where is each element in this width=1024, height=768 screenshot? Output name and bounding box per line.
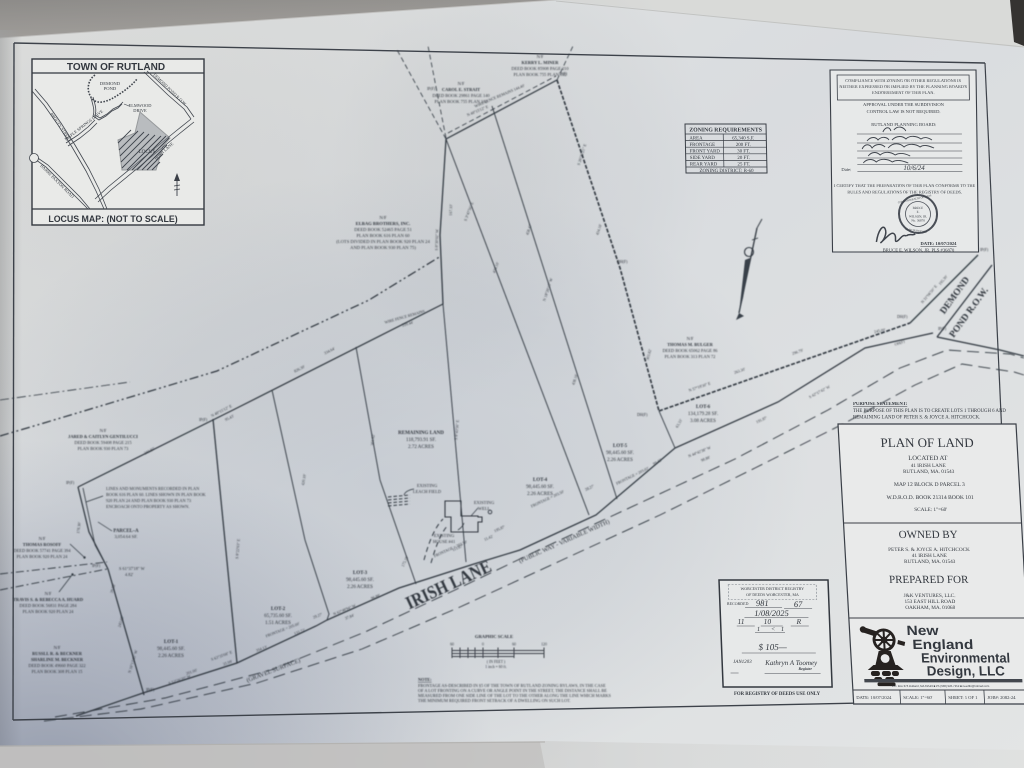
svg-text:DH(F): DH(F): [617, 260, 628, 264]
svg-text:N/F: N/F: [39, 536, 46, 541]
svg-text:134,179.28 SF.: 134,179.28 SF.: [688, 412, 718, 417]
svg-text:THE PURPOSE OF THIS PLAN IS TO: THE PURPOSE OF THIS PLAN IS TO CREATE LO…: [853, 409, 1006, 414]
svg-text:REMAINING LAND OF PETER S. & J: REMAINING LAND OF PETER S. & JOYCE A. HI…: [853, 416, 980, 421]
svg-text:N/F: N/F: [54, 645, 61, 650]
svg-text:FRONTAGE: FRONTAGE: [689, 143, 715, 148]
svg-text:IP(F): IP(F): [938, 327, 947, 331]
svg-text:DEED BOOK 85908 PAGE 210: DEED BOOK 85908 PAGE 210: [511, 66, 569, 71]
svg-text:LOT-3: LOT-3: [353, 571, 368, 576]
svg-text:DEED BOOK 29861 PAGE 140: DEED BOOK 29861 PAGE 140: [432, 93, 490, 98]
svg-text:60: 60: [450, 643, 454, 647]
svg-text:2.26 ACRES: 2.26 ACRES: [347, 585, 373, 590]
svg-text:10: 10: [763, 617, 771, 626]
svg-text:N/F: N/F: [458, 81, 465, 86]
svg-text:PLAN BOOK 920 PLAN 24: PLAN BOOK 920 PLAN 24: [23, 609, 75, 614]
svg-text:Date:: Date:: [841, 167, 851, 172]
svg-text:1/08/2025: 1/08/2025: [754, 608, 789, 618]
svg-text:IP(F): IP(F): [92, 564, 101, 568]
svg-text:RUTLAND PLANNING BOARD:: RUTLAND PLANNING BOARD:: [871, 122, 936, 127]
svg-text:THOMAS M. BULGER: THOMAS M. BULGER: [667, 342, 713, 347]
svg-text:TOWN OF RUTLAND: TOWN OF RUTLAND: [67, 62, 165, 73]
svg-text:11: 11: [737, 617, 744, 626]
svg-text:1: 1: [781, 626, 785, 633]
svg-text:120: 120: [541, 643, 547, 647]
svg-text:CONTROL LAW IS NOT REQUIRED.: CONTROL LAW IS NOT REQUIRED.: [867, 109, 941, 114]
svg-text:E.: E.: [917, 210, 920, 214]
svg-text:PLAN BOOK 308 PLAN 15: PLAN BOOK 308 PLAN 15: [32, 669, 84, 674]
svg-text:JAN1203: JAN1203: [733, 660, 752, 665]
svg-text:SCALE: 1"=60': SCALE: 1"=60': [914, 507, 947, 513]
svg-text:IP(F): IP(F): [66, 481, 75, 485]
svg-text:0: 0: [482, 643, 484, 647]
svg-text:25 FT.: 25 FT.: [737, 163, 750, 168]
svg-text:DEED BOOK 59408 PAGE 215: DEED BOOK 59408 PAGE 215: [74, 440, 132, 445]
svg-text:GRAPHIC SCALE: GRAPHIC SCALE: [475, 634, 513, 639]
svg-text:TRAVIS S. & REBECCA A. HUARD: TRAVIS S. & REBECCA A. HUARD: [13, 597, 83, 602]
svg-text:DEED BOOK 56831 PAGE 284: DEED BOOK 56831 PAGE 284: [19, 603, 77, 608]
svg-text:PLAN BOOK 930 PLAN 73: PLAN BOOK 930 PLAN 73: [78, 446, 130, 451]
svg-text:DEED BOOK 65062 PAGE 86: DEED BOOK 65062 PAGE 86: [663, 348, 719, 353]
svg-text:PLAN OF LAND: PLAN OF LAND: [880, 435, 974, 450]
svg-text:DH(F): DH(F): [897, 315, 908, 319]
svg-text:AREA: AREA: [689, 136, 703, 141]
svg-text:N/F: N/F: [687, 336, 694, 341]
svg-text:OWNED BY: OWNED BY: [898, 529, 958, 541]
svg-text:IP(F): IP(F): [427, 87, 436, 91]
svg-text:PLAN BOOK 920 PLAN 24: PLAN BOOK 920 PLAN 24: [17, 554, 69, 559]
svg-text:AND PLAN BOOK 930 PLAN 75): AND PLAN BOOK 930 PLAN 75): [350, 245, 416, 250]
svg-text:3.08 ACRES: 3.08 ACRES: [690, 419, 716, 424]
svg-text:DRIVE: DRIVE: [133, 108, 147, 113]
svg-text:LEACH FIELD: LEACH FIELD: [413, 489, 441, 494]
svg-text:IP(F): IP(F): [146, 688, 155, 692]
svg-text:ELBAG BROTHERS, INC.: ELBAG BROTHERS, INC.: [356, 221, 411, 226]
svg-text:ZONING DISTRICT: R-60: ZONING DISTRICT: R-60: [699, 169, 754, 174]
svg-text:WELL: WELL: [478, 506, 491, 511]
svg-text:LOCUS: LOCUS: [138, 149, 155, 155]
svg-text:2.26 ACRES: 2.26 ACRES: [158, 654, 184, 659]
svg-text:DATE: 10/07/2024: DATE: 10/07/2024: [920, 241, 957, 246]
svg-text:2.26 ACRES: 2.26 ACRES: [607, 458, 633, 463]
svg-text:SIDE YARD: SIDE YARD: [690, 156, 716, 161]
svg-text:981: 981: [756, 598, 769, 608]
svg-text:RUTLAND, MA. 01543: RUTLAND, MA. 01543: [903, 469, 955, 475]
svg-text:S 61°37'18" W: S 61°37'18" W: [119, 566, 146, 571]
svg-text:PLAN BOOK 616 PLAN 60: PLAN BOOK 616 PLAN 60: [356, 233, 410, 238]
svg-text:Design, LLC: Design, LLC: [926, 664, 1005, 679]
svg-text:JARED & CAITLYN GENTILUCCI: JARED & CAITLYN GENTILUCCI: [68, 434, 138, 439]
svg-text:98,445.60 SF.: 98,445.60 SF.: [157, 647, 185, 652]
svg-text:98,445.60 SF.: 98,445.60 SF.: [346, 578, 374, 583]
svg-text:NOTE:: NOTE:: [418, 677, 432, 682]
svg-text:LOT-5: LOT-5: [613, 444, 628, 449]
svg-text:REAR YARD: REAR YARD: [690, 163, 718, 168]
svg-text:Register: Register: [798, 666, 812, 671]
svg-text:N/F: N/F: [537, 54, 544, 59]
svg-text:IP(F): IP(F): [980, 248, 989, 252]
svg-text:10/6/24: 10/6/24: [903, 164, 925, 172]
svg-text:WORCESTER DISTRICT REGISTRY: WORCESTER DISTRICT REGISTRY: [740, 586, 804, 591]
svg-text:RULES AND REGULATIONS OF THE R: RULES AND REGULATIONS OF THE REGISTRY OF…: [847, 190, 962, 195]
svg-text:R: R: [795, 617, 801, 626]
svg-text:RECORDED: RECORDED: [727, 601, 749, 606]
svg-text:I CERTIFY THAT THE PREPARATION: I CERTIFY THAT THE PREPARATION OF THIS P…: [834, 183, 976, 188]
svg-text:HOUSE #41: HOUSE #41: [433, 539, 455, 544]
svg-text:EXISTING: EXISTING: [434, 533, 455, 538]
svg-text:KERRY L. MINER: KERRY L. MINER: [522, 60, 560, 65]
svg-text:NEITHER EXPRESSED OR IMPLIED B: NEITHER EXPRESSED OR IMPLIED BY THE PLAN…: [839, 84, 967, 89]
svg-text:PREPARED FOR: PREPARED FOR: [889, 574, 970, 586]
svg-text:LOT-1: LOT-1: [164, 640, 179, 645]
svg-text:SCALE: 1"=60': SCALE: 1"=60': [903, 695, 933, 700]
svg-text:POND: POND: [104, 86, 117, 91]
svg-text:IP(F): IP(F): [559, 72, 568, 76]
svg-text:PLAN BOOK 313 PLAN 72: PLAN BOOK 313 PLAN 72: [665, 354, 716, 359]
svg-text:N/F: N/F: [45, 591, 52, 596]
svg-text:CAROL E. STRAIT: CAROL E. STRAIT: [442, 87, 480, 92]
svg-text:LOT-6: LOT-6: [696, 405, 711, 410]
svg-text:FOR REGISTRY OF DEEDS USE ONLY: FOR REGISTRY OF DEEDS USE ONLY: [734, 692, 821, 697]
svg-text:SHEET: 1 OF 1: SHEET: 1 OF 1: [948, 695, 978, 700]
svg-text:SHARLINE M. BECKNER: SHARLINE M. BECKNER: [31, 657, 84, 662]
svg-text:S 8°30'02" W: S 8°30'02" W: [435, 229, 440, 251]
svg-text:FRONT YARD: FRONT YARD: [690, 150, 721, 155]
svg-text:98,445.60 SF.: 98,445.60 SF.: [606, 451, 634, 456]
svg-text:N/F: N/F: [100, 428, 107, 433]
svg-text:920 PLAN 24 AND PLAN BOOK 930: 920 PLAN 24 AND PLAN BOOK 930 PLAN 73: [106, 498, 191, 503]
svg-text:IP(F): IP(F): [199, 418, 208, 422]
svg-text:RUSSLL R. & BECKNER: RUSSLL R. & BECKNER: [32, 651, 83, 656]
svg-text:4.82': 4.82': [125, 572, 134, 577]
svg-text:2.72 ACRES: 2.72 ACRES: [408, 445, 434, 450]
svg-text:DEED BOOK 49660 PAGE 322: DEED BOOK 49660 PAGE 322: [28, 663, 85, 668]
svg-text:EXISTING: EXISTING: [474, 500, 495, 505]
svg-text:THE MINIMUM REQUIRED FRONT SET: THE MINIMUM REQUIRED FRONT SETBACK OF A …: [418, 698, 571, 703]
svg-text:COMPLIANCE WITH ZONING OR OTHE: COMPLIANCE WITH ZONING OR OTHER REGULATI…: [845, 78, 961, 83]
svg-text:98,445.60 SF.: 98,445.60 SF.: [526, 485, 554, 490]
svg-text:JOB#: 2082-24: JOB#: 2082-24: [987, 695, 1016, 700]
svg-text:LOCATED AT: LOCATED AT: [908, 455, 948, 462]
svg-text:W.D.R.O.D. BOOK 21314 BOOK 101: W.D.R.O.D. BOOK 21314 BOOK 101: [886, 495, 974, 501]
svg-text:60: 60: [512, 643, 516, 647]
svg-text:200 FT.: 200 FT.: [736, 143, 751, 148]
svg-text:65,340 S.F.: 65,340 S.F.: [732, 136, 754, 141]
svg-text:67: 67: [794, 599, 804, 609]
svg-text:P.O. Box 376 Rutland, MA 01543: P.O. Box 376 Rutland, MA 01543 ■ Ph (508…: [892, 684, 990, 688]
svg-text:118,793.91 SF.: 118,793.91 SF.: [406, 438, 436, 443]
svg-text:ZONING REQUIREMENTS: ZONING REQUIREMENTS: [689, 128, 762, 134]
svg-text:PURPOSE STATEMENT:: PURPOSE STATEMENT:: [853, 402, 908, 407]
svg-text:BOOK 616 PLAN 60. LINES SHOWN: BOOK 616 PLAN 60. LINES SHOWN IN PLAN BO…: [106, 492, 207, 497]
svg-text:LINES AND MONUMENTS RECORDED I: LINES AND MONUMENTS RECORDED IN PLAN: [106, 486, 199, 491]
svg-text:ENCROACH ONTO PROPERTY AS SHOW: ENCROACH ONTO PROPERTY AS SHOWN.: [106, 504, 189, 509]
svg-text:ENDORSEMENT OF THIS PLAN.: ENDORSEMENT OF THIS PLAN.: [872, 90, 934, 95]
svg-text:DEED BOOK 52465 PAGE 51: DEED BOOK 52465 PAGE 51: [354, 227, 412, 232]
svg-text:(LOTS DIVIDED IN PLAN BOOK 920: (LOTS DIVIDED IN PLAN BOOK 920 PLAN 24: [336, 239, 430, 244]
svg-text:REMAINING LAND: REMAINING LAND: [398, 431, 444, 436]
svg-text:MAP 12 BLOCK D PARCEL 3: MAP 12 BLOCK D PARCEL 3: [894, 482, 966, 488]
svg-text:N/F: N/F: [379, 215, 387, 220]
svg-text:EXISTING: EXISTING: [417, 483, 438, 488]
svg-text:30 FT.: 30 FT.: [737, 150, 750, 155]
svg-text:167.10': 167.10': [449, 204, 453, 216]
svg-text:$ 105—: $ 105—: [758, 642, 788, 652]
svg-text:THOMAS ROSOFF: THOMAS ROSOFF: [23, 542, 62, 547]
svg-text:1: 1: [757, 626, 761, 633]
svg-text:( IN FEET ): ( IN FEET ): [487, 660, 506, 664]
svg-text:65,735.60 SF.: 65,735.60 SF.: [264, 614, 292, 619]
svg-text:OAKHAM, MA. 01068: OAKHAM, MA. 01068: [905, 605, 956, 611]
svg-text:<: <: [771, 626, 776, 633]
svg-text:LOCUS MAP: (NOT TO SCALE): LOCUS MAP: (NOT TO SCALE): [48, 214, 177, 224]
svg-text:20 FT.: 20 FT.: [737, 156, 750, 161]
svg-text:DATE: 10/07/2024: DATE: 10/07/2024: [856, 695, 892, 700]
svg-text:APPROVAL UNDER THE SUBDIVISION: APPROVAL UNDER THE SUBDIVISION: [863, 102, 945, 107]
svg-text:DEED BOOK 57741 PAGE 394: DEED BOOK 57741 PAGE 394: [13, 548, 71, 553]
svg-text:1 inch = 60 ft.: 1 inch = 60 ft.: [485, 665, 506, 669]
svg-text:LOT-4: LOT-4: [533, 478, 548, 483]
svg-text:No. 36870: No. 36870: [911, 219, 925, 223]
svg-text:DH(F): DH(F): [637, 413, 648, 417]
svg-text:LOT-2: LOT-2: [271, 607, 286, 612]
svg-text:RUTLAND, MA. 01543: RUTLAND, MA. 01543: [904, 559, 956, 565]
svg-text:New: New: [906, 623, 939, 638]
